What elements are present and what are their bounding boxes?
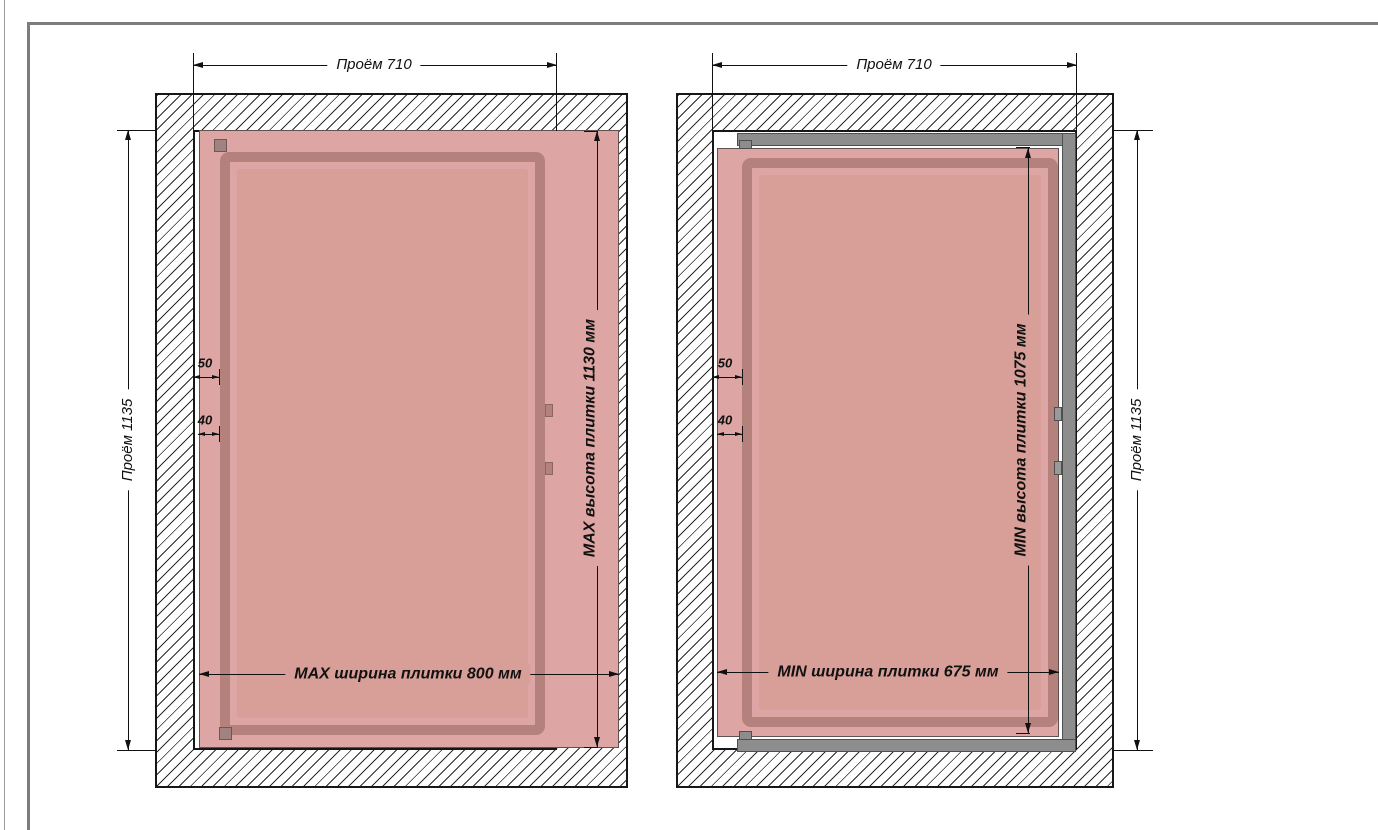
arrowhead-right-icon bbox=[1067, 62, 1077, 68]
latch-upper-max bbox=[545, 404, 553, 417]
dim-tick bbox=[219, 426, 220, 442]
arrowhead-up-icon bbox=[594, 131, 600, 141]
metal-frame-top-min bbox=[737, 133, 1076, 146]
label-opening-height-right: Проём 1135 bbox=[1128, 390, 1146, 491]
blueprint-canvas: Проём 710 Проём 1135 50 40 MAX ширина пл… bbox=[0, 0, 1378, 830]
arrowhead-left-icon bbox=[717, 669, 727, 675]
door-panel-max bbox=[237, 169, 528, 718]
arrowhead-right-icon bbox=[547, 62, 557, 68]
label-tile-width-min: MIN ширина плитки 675 мм bbox=[768, 662, 1007, 681]
arrowhead-down-icon bbox=[1025, 723, 1031, 733]
label-tile-height-min: MIN высота плитки 1075 мм bbox=[1011, 314, 1030, 565]
dim-tick bbox=[742, 369, 743, 385]
arrowhead-up-icon bbox=[125, 130, 131, 140]
label-opening-width-left: Проём 710 bbox=[327, 56, 420, 74]
label-opening-width-right: Проём 710 bbox=[847, 56, 940, 74]
latch-lower-min bbox=[1054, 461, 1062, 475]
label-tile-width-max: MAX ширина плитки 800 мм bbox=[285, 664, 530, 683]
arrowhead-down-icon bbox=[594, 737, 600, 747]
hinge-top-max bbox=[214, 139, 227, 152]
arrowhead-left-icon bbox=[193, 62, 203, 68]
label-gap50-right: 50 bbox=[718, 356, 732, 371]
arrowhead-right-icon bbox=[212, 432, 219, 436]
label-opening-height-left: Проём 1135 bbox=[119, 390, 137, 491]
arrowhead-up-icon bbox=[1134, 130, 1140, 140]
hinge-bottom-min bbox=[739, 731, 752, 740]
arrowhead-left-icon bbox=[712, 375, 719, 379]
metal-frame-right-min bbox=[1062, 133, 1076, 752]
dim-tick bbox=[1016, 147, 1030, 148]
latch-upper-min bbox=[1054, 407, 1062, 421]
arrowhead-right-icon bbox=[735, 375, 742, 379]
ext-line bbox=[117, 750, 156, 751]
arrowhead-down-icon bbox=[1134, 740, 1140, 750]
dim-tick bbox=[219, 369, 220, 385]
latch-lower-max bbox=[545, 462, 553, 475]
label-gap40-right: 40 bbox=[718, 413, 732, 428]
arrowhead-right-icon bbox=[212, 375, 219, 379]
hinge-bottom-max bbox=[219, 727, 232, 740]
arrowhead-right-icon bbox=[609, 671, 619, 677]
ext-line bbox=[1114, 750, 1153, 751]
hinge-top-min bbox=[739, 140, 752, 149]
dim-tick bbox=[742, 426, 743, 442]
label-gap40-left: 40 bbox=[198, 413, 212, 428]
arrowhead-right-icon bbox=[735, 432, 742, 436]
arrowhead-right-icon bbox=[1049, 669, 1059, 675]
metal-frame-bottom-min bbox=[737, 739, 1076, 752]
arrowhead-left-icon bbox=[193, 375, 200, 379]
dim-tick bbox=[1016, 733, 1030, 734]
label-gap50-left: 50 bbox=[198, 356, 212, 371]
page-edge-line bbox=[4, 0, 5, 830]
arrowhead-up-icon bbox=[1025, 148, 1031, 158]
label-tile-height-max: MAX высота плитки 1130 мм bbox=[580, 310, 599, 566]
door-panel-min bbox=[759, 175, 1041, 710]
arrowhead-down-icon bbox=[125, 740, 131, 750]
dim-tick bbox=[584, 747, 598, 748]
ext-line bbox=[117, 130, 156, 131]
arrowhead-left-icon bbox=[712, 62, 722, 68]
arrowhead-left-icon bbox=[717, 432, 724, 436]
dim-tick bbox=[584, 131, 598, 132]
arrowhead-left-icon bbox=[198, 432, 205, 436]
arrowhead-left-icon bbox=[199, 671, 209, 677]
